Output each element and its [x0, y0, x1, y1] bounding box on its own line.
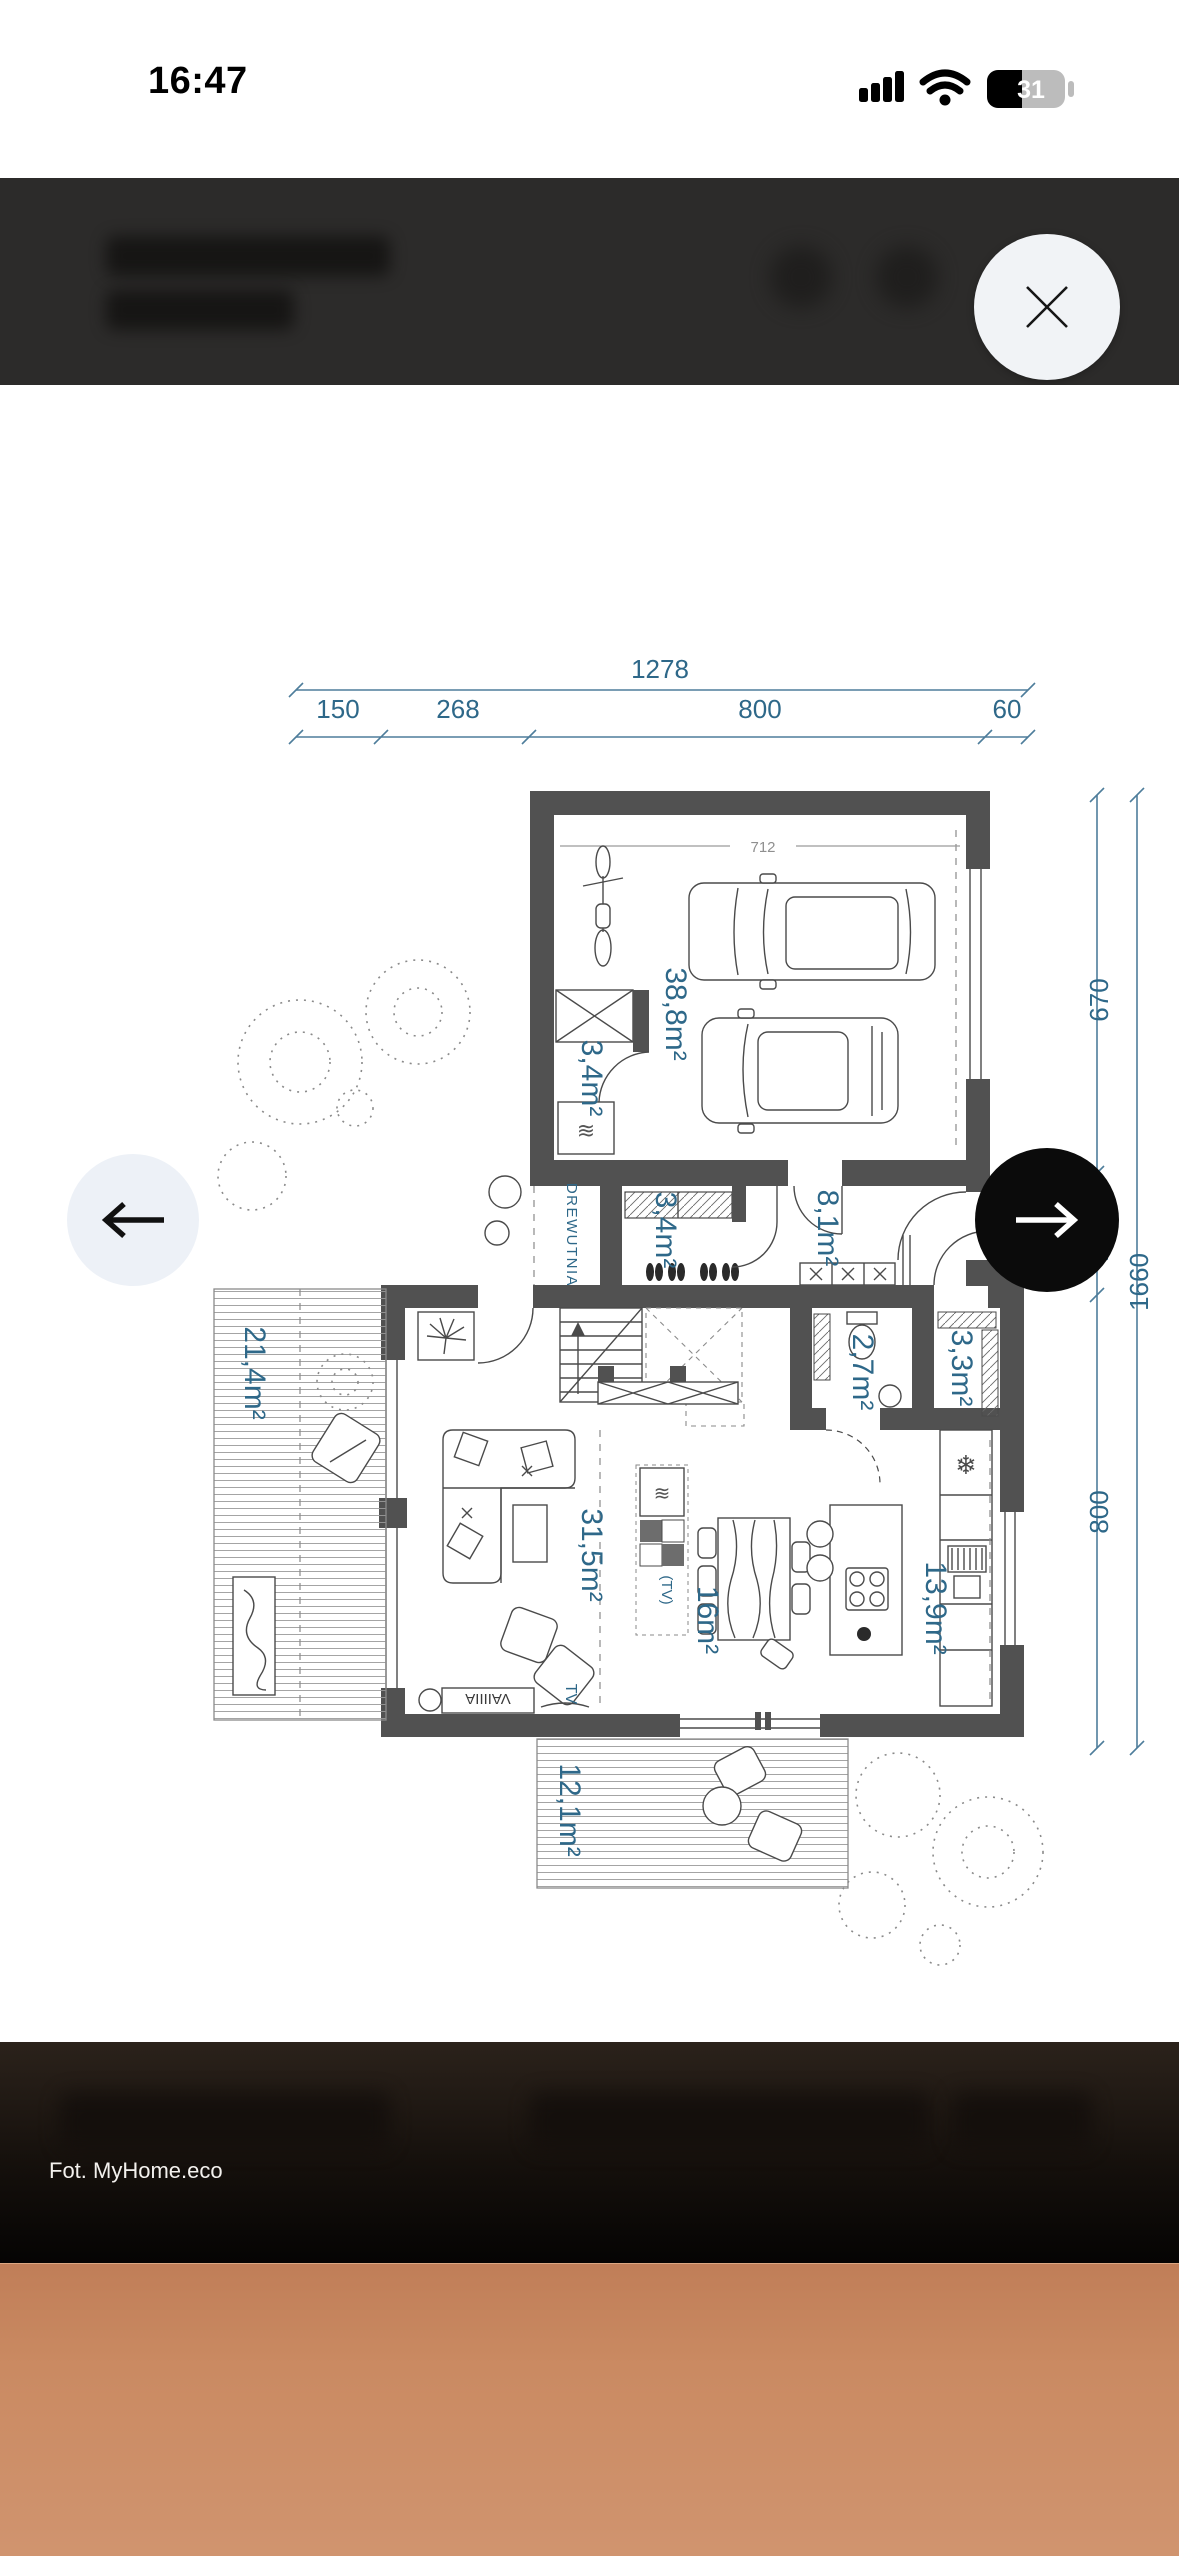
room-kitchen-label: 13,9m² — [919, 1561, 952, 1654]
dim-800b: 800 — [1084, 1490, 1114, 1533]
garage-inner-dim: 712 — [560, 839, 960, 856]
caption-section — [0, 2042, 1179, 2263]
dim-150: 150 — [316, 694, 359, 724]
blurred-heading-1 — [60, 2093, 390, 2149]
arrow-right-icon — [1012, 1200, 1082, 1240]
sideboard-text: VAIIIIA — [465, 1690, 511, 1707]
phone-screen: 16:47 31 — [0, 0, 1179, 2556]
room-terrace-left-label: 21,4m² — [238, 1326, 271, 1419]
room-corridor-label: 3,4m² — [649, 1192, 682, 1269]
browser-toolbar: woczesnastodola.pl — [0, 2263, 1179, 2556]
dim-670: 670 — [1084, 978, 1114, 1021]
room-living-label: 31,5m² — [575, 1508, 608, 1601]
tv-unit-label: (TV) — [658, 1575, 675, 1604]
room-pantry-label: 3,3m² — [945, 1330, 978, 1407]
room-terrace-bottom-label: 12,1m² — [553, 1763, 586, 1856]
room-dining-label: 16m² — [691, 1586, 724, 1654]
prev-image-button[interactable] — [67, 1154, 199, 1286]
room-woodshed-label: DREWUTNIA — [563, 1183, 580, 1287]
dim-garage-712: 712 — [750, 839, 775, 856]
dimensions-top: 1278 150 268 800 60 — [289, 654, 1035, 744]
room-garage-storage-label: 3,4m² — [575, 1040, 608, 1117]
dim-1660: 1660 — [1124, 1253, 1154, 1311]
washer-icon: ≋ — [577, 1118, 595, 1143]
motorcycle — [583, 846, 623, 966]
radiator-icon: ≋ — [654, 1483, 671, 1505]
room-wc-label: 2,7m² — [846, 1334, 879, 1411]
car-hatchback — [702, 1009, 898, 1133]
photo-credit: Fot. MyHome.eco — [49, 2158, 223, 2184]
blurred-heading-3 — [952, 2093, 1092, 2149]
room-garage-label: 38,8m² — [659, 967, 692, 1060]
stairs — [560, 1308, 744, 1426]
arrow-left-icon — [98, 1200, 168, 1240]
kitchen: ❄ — [807, 1430, 992, 1706]
living-room: VAIIIIA TV — [418, 1312, 600, 1713]
dim-total-width: 1278 — [631, 654, 689, 684]
blurred-heading-2 — [530, 2093, 930, 2149]
next-image-button[interactable] — [975, 1148, 1119, 1292]
tv-wall-label: TV — [562, 1684, 579, 1705]
fridge-icon: ❄ — [955, 1450, 977, 1480]
dim-800: 800 — [738, 694, 781, 724]
dim-268: 268 — [436, 694, 479, 724]
room-hall-label: 8,1m² — [811, 1190, 844, 1267]
dim-60: 60 — [993, 694, 1022, 724]
car-sedan — [689, 874, 935, 989]
